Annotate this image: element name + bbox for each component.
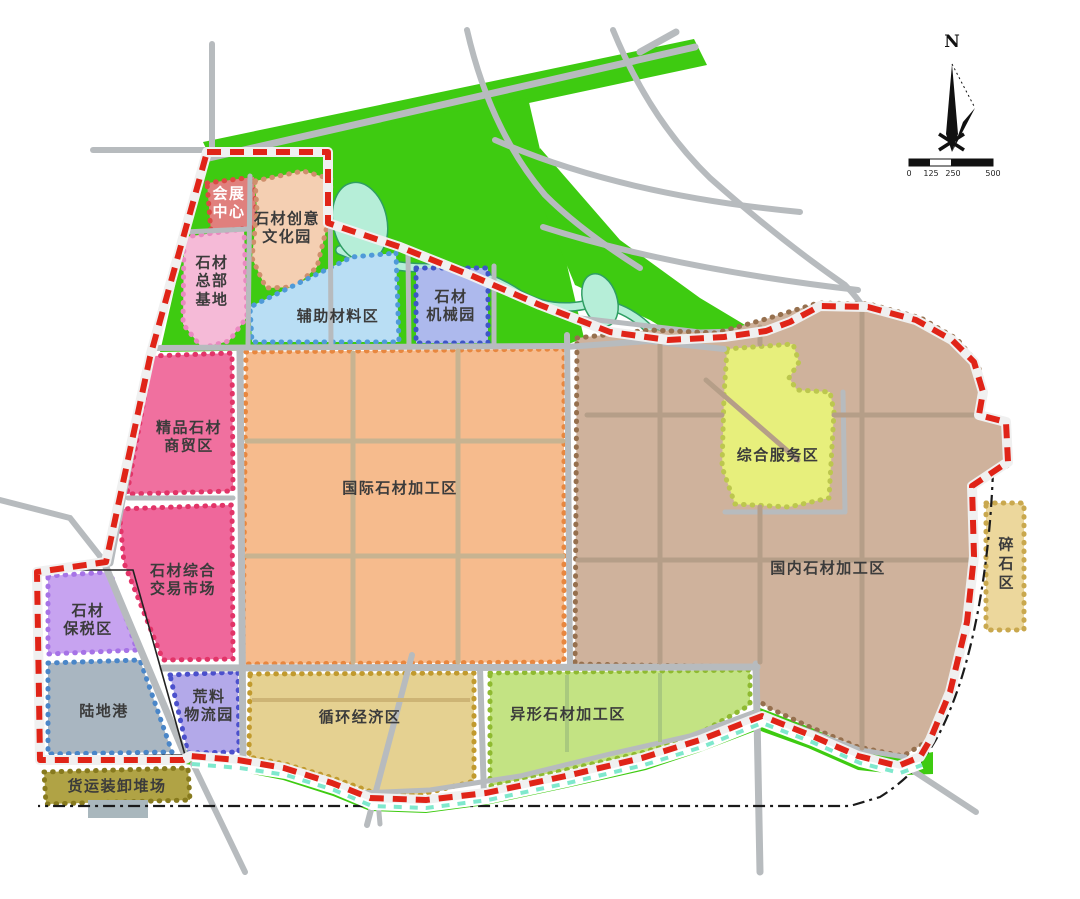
scale-tick-125: 125	[923, 169, 938, 178]
scale-tick-250: 250	[945, 169, 960, 178]
zone-label-jixie-park: 石材 机械园	[426, 288, 476, 325]
freight-platform	[88, 800, 148, 818]
zone-label-zongbu-base: 石材 总部 基地	[195, 254, 228, 309]
zone-label-service-zone: 综合服务区	[737, 446, 820, 464]
scale-bar-seg2	[951, 159, 993, 166]
zone-label-ludi-port: 陆地港	[79, 702, 129, 720]
road-southeast-diagonal	[912, 770, 976, 812]
zone-intl-processing	[243, 349, 564, 664]
road-south-ew	[163, 667, 757, 668]
north-label: N	[944, 32, 960, 52]
scale-bar	[909, 159, 993, 166]
north-arrow-icon	[939, 64, 975, 152]
zone-label-chuangyi-park: 石材创意 文化园	[254, 210, 320, 247]
zone-label-domestic-processing: 国内石材加工区	[770, 559, 886, 577]
zone-label-jingpin-trade: 精品石材 商贸区	[156, 419, 222, 456]
zone-label-yixing-processing: 异形石材加工区	[510, 705, 626, 723]
road-orange-brown-divider	[567, 335, 570, 666]
scale-bar-seg1	[909, 159, 930, 166]
road-huizhan-south	[185, 229, 248, 232]
compass-dotted-edge	[952, 64, 975, 108]
road-east-ns	[756, 664, 760, 872]
zone-label-freight-yard: 货运装卸堆场	[67, 777, 166, 795]
zone-label-huizhan-center: 会展 中心	[212, 185, 245, 222]
zone-label-trading-market: 石材综合 交易市场	[150, 562, 216, 599]
road-fuzhu-east	[408, 253, 409, 347]
scale-tick-0: 0	[906, 169, 911, 178]
road-service-east	[843, 392, 845, 512]
zone-label-baoshui-zone: 石材 保税区	[63, 602, 113, 639]
road-main-ew	[155, 346, 566, 348]
scale-tick-500: 500	[985, 169, 1000, 178]
zone-label-xunhuan-economy: 循环经济区	[319, 708, 402, 726]
zone-label-intl-processing: 国际石材加工区	[342, 479, 458, 497]
planning-map: 会展 中心 石材创意 文化园 石材 总部 基地 辅助材料区 石材 机械园 精品石…	[0, 0, 1080, 899]
road-xunhuan-yixing-divider	[480, 668, 484, 796]
zone-label-fuzhu-materials: 辅助材料区	[297, 307, 380, 325]
road-west-approach	[0, 500, 103, 560]
road-main-ns	[240, 349, 243, 764]
road-zongbu-east	[248, 176, 250, 345]
road-southwest-diagonal	[193, 764, 245, 872]
zone-label-suishi-zone: 碎石区	[998, 537, 1013, 594]
zone-label-huangliao-logistics: 荒料 物流园	[184, 688, 234, 725]
